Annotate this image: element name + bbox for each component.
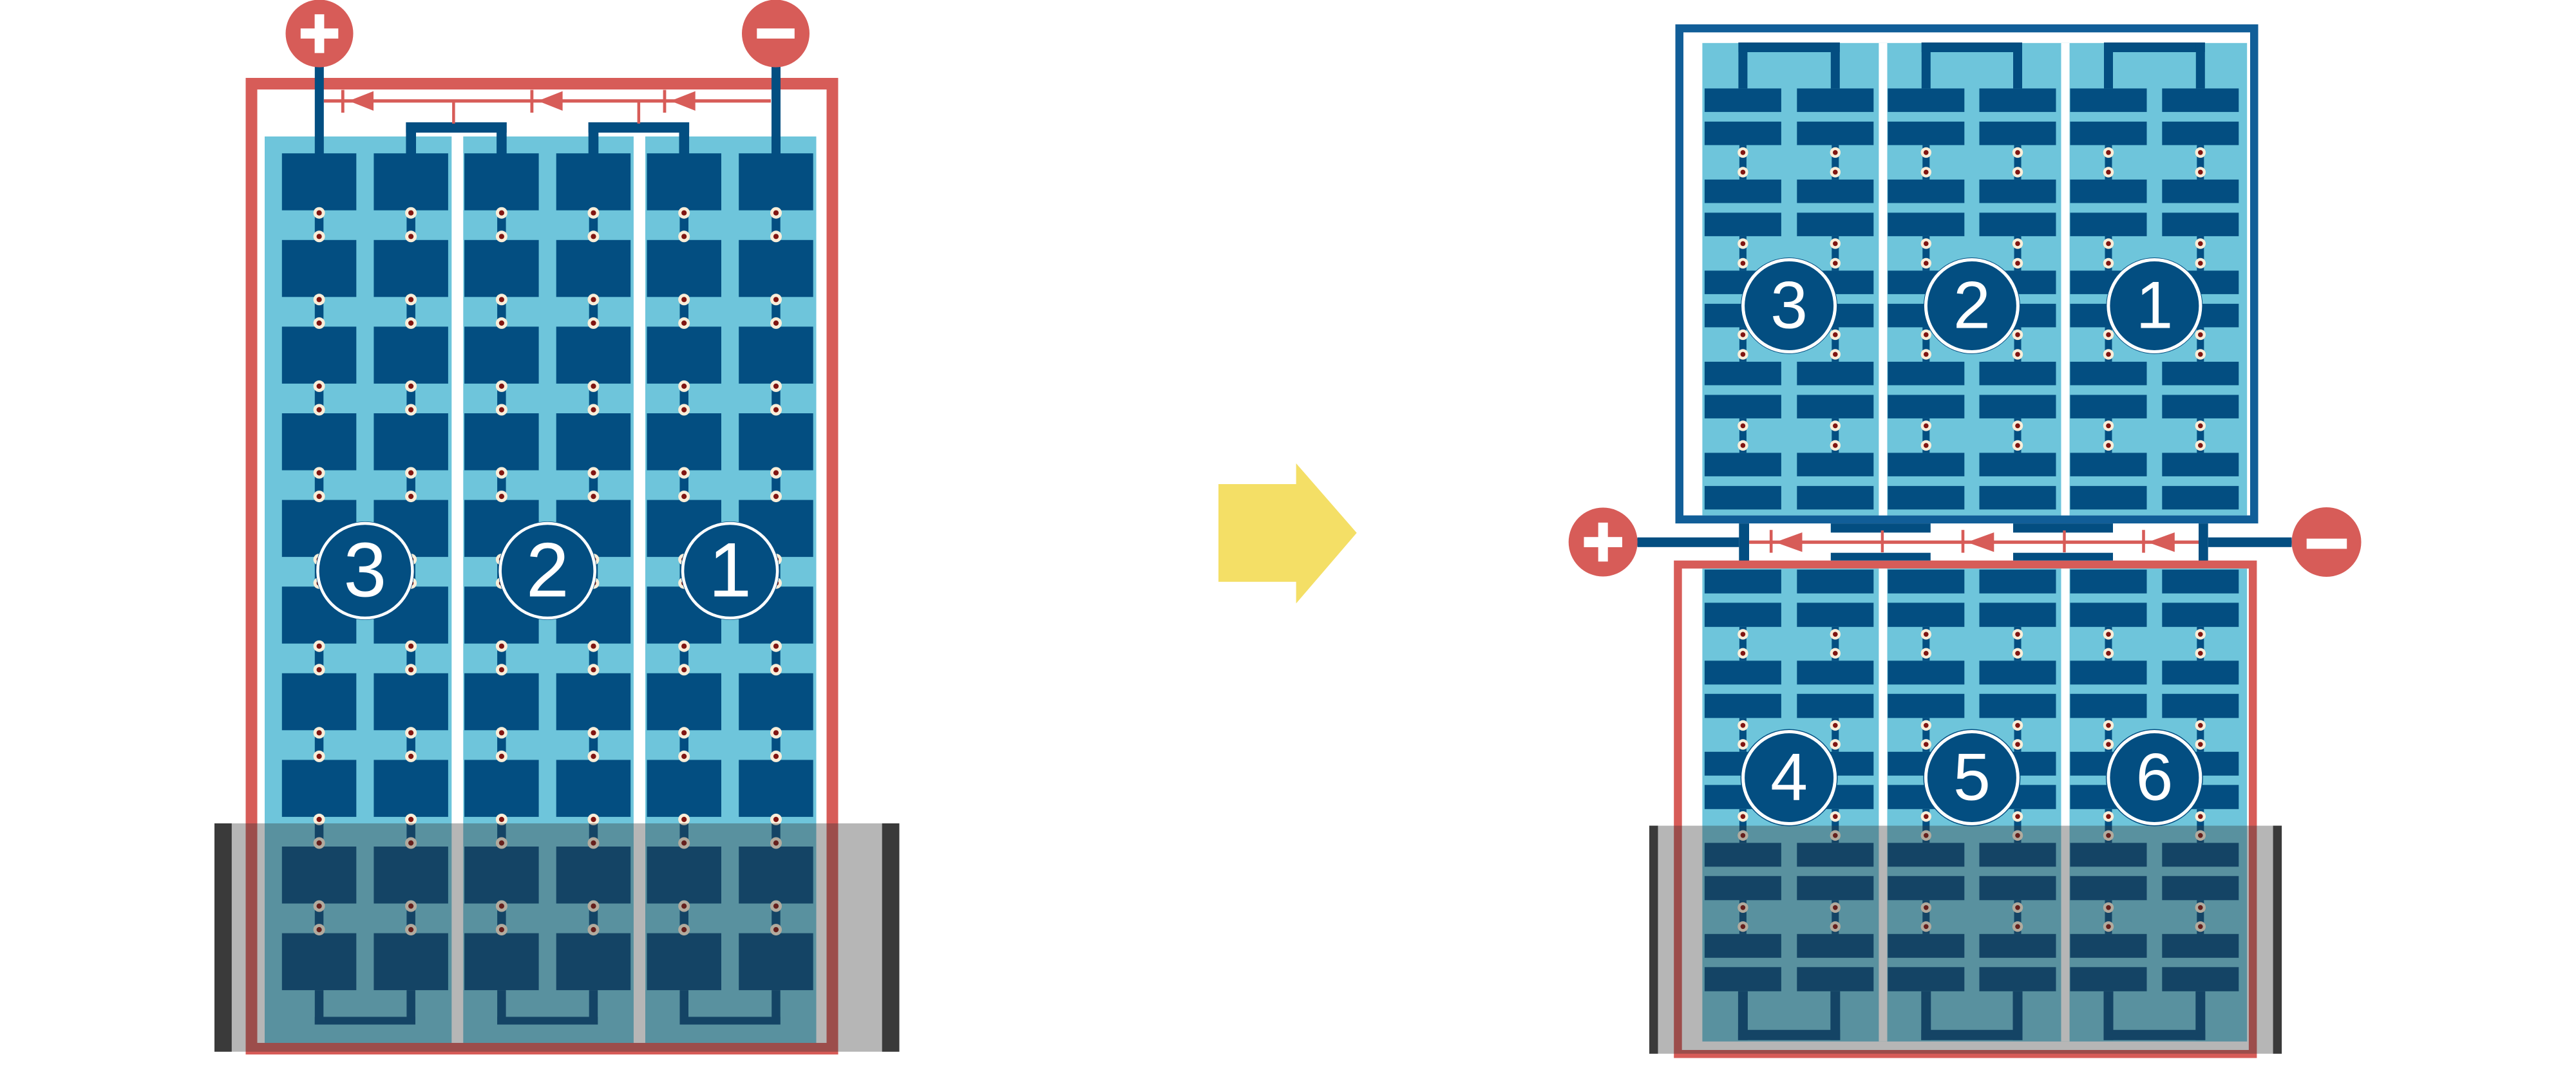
svg-text:2: 2 bbox=[1953, 268, 1991, 343]
svg-text:3: 3 bbox=[1770, 268, 1808, 343]
svg-text:5: 5 bbox=[1953, 740, 1991, 815]
svg-text:1: 1 bbox=[2136, 268, 2173, 343]
svg-text:6: 6 bbox=[2136, 740, 2173, 815]
svg-text:4: 4 bbox=[1770, 740, 1808, 815]
svg-text:3: 3 bbox=[344, 527, 387, 614]
svg-text:1: 1 bbox=[708, 527, 752, 614]
svg-text:2: 2 bbox=[526, 527, 569, 614]
